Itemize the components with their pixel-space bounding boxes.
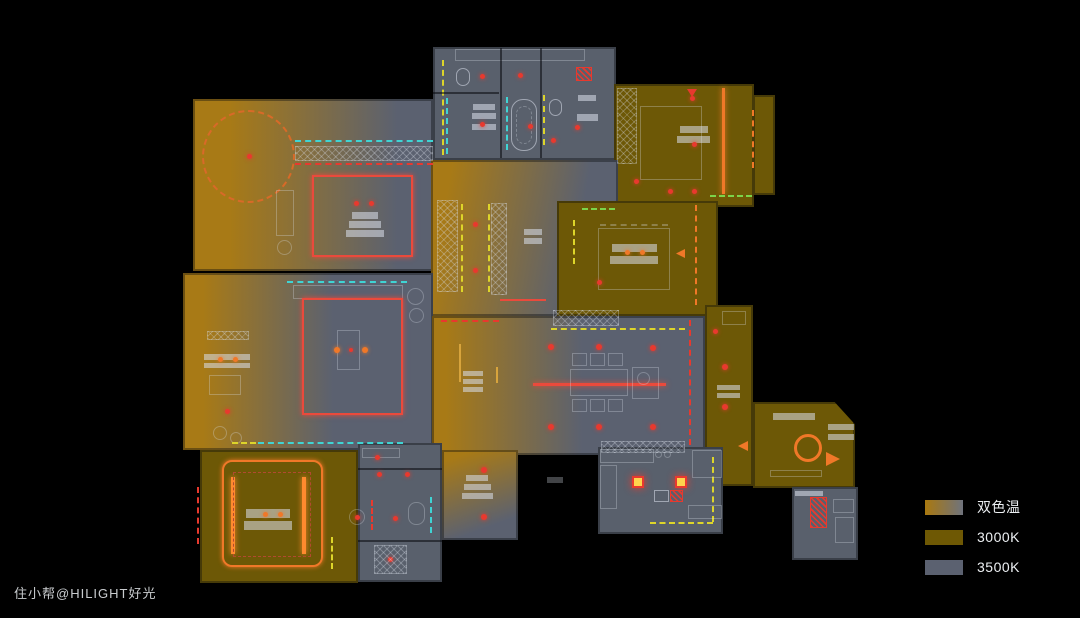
- armchair: [407, 288, 424, 305]
- legend-label-dual: 双色温: [977, 500, 1021, 515]
- washer: [374, 545, 407, 574]
- downlight: [369, 201, 374, 206]
- appliance-light: [675, 476, 687, 488]
- downlight: [377, 472, 382, 477]
- shower-light: [810, 497, 827, 528]
- closet-hatch: [491, 203, 507, 295]
- toilet: [835, 517, 854, 543]
- linear-light: [459, 344, 461, 382]
- counter: [600, 449, 654, 463]
- led-strip: [446, 98, 448, 154]
- downlight: [375, 455, 380, 460]
- cabinet: [209, 375, 241, 395]
- downlight: [480, 122, 485, 127]
- dresser: [464, 484, 491, 490]
- downlight: [349, 348, 353, 352]
- legend-swatch-dual: [925, 500, 963, 515]
- led-strip: [441, 320, 499, 322]
- downlight: [692, 142, 697, 147]
- bed: [346, 230, 384, 237]
- downlight: [225, 409, 230, 414]
- downlight: [650, 345, 656, 351]
- floorplan: [0, 0, 1080, 618]
- downlight: [548, 424, 554, 430]
- led-strip: [371, 500, 373, 530]
- led-strip: [295, 163, 433, 165]
- shelf: [463, 387, 483, 392]
- legend-swatch-3500k: [925, 560, 963, 575]
- downlight: [473, 268, 478, 273]
- bed: [246, 509, 290, 518]
- downlight: [596, 424, 602, 430]
- downlight: [247, 154, 252, 159]
- round-pendant: [794, 434, 822, 462]
- bench: [770, 470, 822, 477]
- downlight: [722, 364, 728, 370]
- downlight: [518, 73, 523, 78]
- spotlight: [334, 347, 340, 353]
- appliance-light: [632, 476, 644, 488]
- shelf: [717, 385, 740, 390]
- cabinet: [722, 311, 746, 325]
- chair: [608, 399, 623, 412]
- counter: [688, 505, 722, 519]
- vanity: [833, 499, 854, 513]
- wardrobe-hatch: [295, 146, 433, 161]
- downlight: [551, 138, 556, 143]
- dresser: [462, 493, 493, 499]
- downlight: [596, 344, 602, 350]
- chair: [572, 353, 587, 366]
- cabinet: [362, 448, 400, 458]
- downlight: [481, 467, 487, 473]
- wall: [540, 48, 542, 158]
- vanity: [578, 95, 596, 101]
- wall: [358, 468, 442, 470]
- legend-label-3000k: 3000K: [977, 530, 1020, 545]
- vanity: [577, 114, 598, 121]
- led-strip: [232, 442, 256, 444]
- downlight: [528, 124, 533, 129]
- led-strip: [287, 281, 407, 283]
- led-strip: [506, 97, 508, 150]
- bed: [612, 244, 657, 252]
- led-strip: [710, 195, 752, 197]
- led-strip: [650, 522, 713, 524]
- spotlight: [233, 357, 238, 362]
- chair: [590, 353, 605, 366]
- plant: [213, 426, 227, 440]
- shelf: [717, 393, 740, 398]
- linear-light: [500, 299, 546, 301]
- linear-light: [496, 367, 498, 383]
- linear-light: [722, 88, 725, 194]
- closet-hatch: [437, 200, 458, 292]
- led-strip: [752, 110, 754, 168]
- wardrobe-hatch: [617, 88, 637, 164]
- led-strip: [430, 497, 432, 533]
- toilet: [456, 68, 470, 86]
- led-strip: [197, 487, 199, 544]
- tv-cabinet-hatch: [207, 331, 249, 340]
- chair: [572, 399, 587, 412]
- downlight: [575, 125, 580, 130]
- shoe-cabinet: [773, 413, 815, 420]
- led-strip: [331, 537, 333, 569]
- downlight: [692, 189, 697, 194]
- dining-table: [570, 369, 628, 396]
- shelf: [463, 379, 483, 384]
- led-strip: [582, 208, 615, 210]
- headboard: [600, 224, 668, 226]
- stool: [277, 240, 292, 255]
- cabinet-hatch: [553, 310, 619, 326]
- stove: [654, 490, 669, 502]
- wall: [433, 92, 499, 94]
- legend-label-3500k: 3500K: [977, 560, 1020, 575]
- downlight: [668, 189, 673, 194]
- armchair: [409, 308, 424, 323]
- spotlight: [625, 250, 630, 255]
- downlight: [481, 514, 487, 520]
- led-strip: [551, 328, 685, 330]
- downlight: [548, 344, 554, 350]
- spotlight: [362, 347, 368, 353]
- shelf: [524, 229, 542, 235]
- spotlight: [640, 250, 645, 255]
- stove-light: [670, 490, 683, 502]
- led-strip: [442, 60, 444, 155]
- led-strip: [543, 95, 545, 145]
- shelf: [795, 491, 823, 496]
- spotlight: [278, 512, 283, 517]
- downlight: [473, 222, 478, 227]
- dresser: [466, 475, 488, 481]
- downlight: [722, 404, 728, 410]
- downlight: [713, 329, 718, 334]
- legend-swatch-3000k: [925, 530, 963, 545]
- tv-bench: [204, 354, 250, 360]
- chair: [590, 399, 605, 412]
- bed: [610, 256, 658, 264]
- shelf: [463, 371, 483, 376]
- shelf: [828, 434, 854, 440]
- tv-bench: [204, 363, 250, 368]
- watermark: 住小帮@HILIGHT好光: [14, 583, 156, 602]
- led-strip: [258, 442, 403, 444]
- toilet: [549, 99, 562, 116]
- led-strip: [695, 205, 697, 305]
- cabinet: [455, 49, 585, 61]
- bed: [349, 221, 381, 228]
- led-strip: [295, 140, 433, 142]
- shower-light: [576, 67, 592, 81]
- counter: [600, 465, 617, 509]
- downlight: [405, 472, 410, 477]
- wall: [358, 540, 442, 542]
- spotlight: [263, 512, 268, 517]
- toilet: [408, 502, 425, 525]
- spotlight: [218, 357, 223, 362]
- led-strip: [689, 320, 691, 445]
- downlight: [597, 280, 602, 285]
- wall: [500, 48, 502, 158]
- downlight: [480, 74, 485, 79]
- legend: 双色温 3000K 3500K: [925, 499, 1021, 575]
- led-strip: [488, 204, 490, 292]
- burner: [664, 451, 671, 458]
- legend-item-dual: 双色温: [925, 499, 1021, 515]
- led-strip: [573, 220, 575, 264]
- led-strip: [461, 204, 463, 292]
- fridge: [692, 450, 722, 478]
- bed: [244, 521, 292, 530]
- bed: [680, 126, 708, 133]
- chair: [608, 353, 623, 366]
- bed: [352, 212, 378, 219]
- legend-item-3500k: 3500K: [925, 559, 1021, 575]
- shelf: [524, 238, 542, 244]
- downlight: [355, 515, 360, 520]
- downlight: [634, 179, 639, 184]
- downlight: [354, 201, 359, 206]
- vanity: [472, 113, 496, 119]
- door: [547, 477, 563, 483]
- sink: [637, 372, 650, 385]
- downlight: [690, 96, 695, 101]
- legend-item-3000k: 3000K: [925, 529, 1021, 545]
- vanity: [473, 104, 495, 110]
- sofa: [293, 285, 403, 299]
- burner: [655, 451, 662, 458]
- furniture: [276, 190, 294, 236]
- downlight: [650, 424, 656, 430]
- downlight: [393, 516, 398, 521]
- lighting-plan-canvas: 双色温 3000K 3500K 住小帮@HILIGHT好光: [0, 0, 1080, 618]
- shelf: [828, 424, 854, 430]
- zone-bedroom-ne-ext: [753, 95, 775, 195]
